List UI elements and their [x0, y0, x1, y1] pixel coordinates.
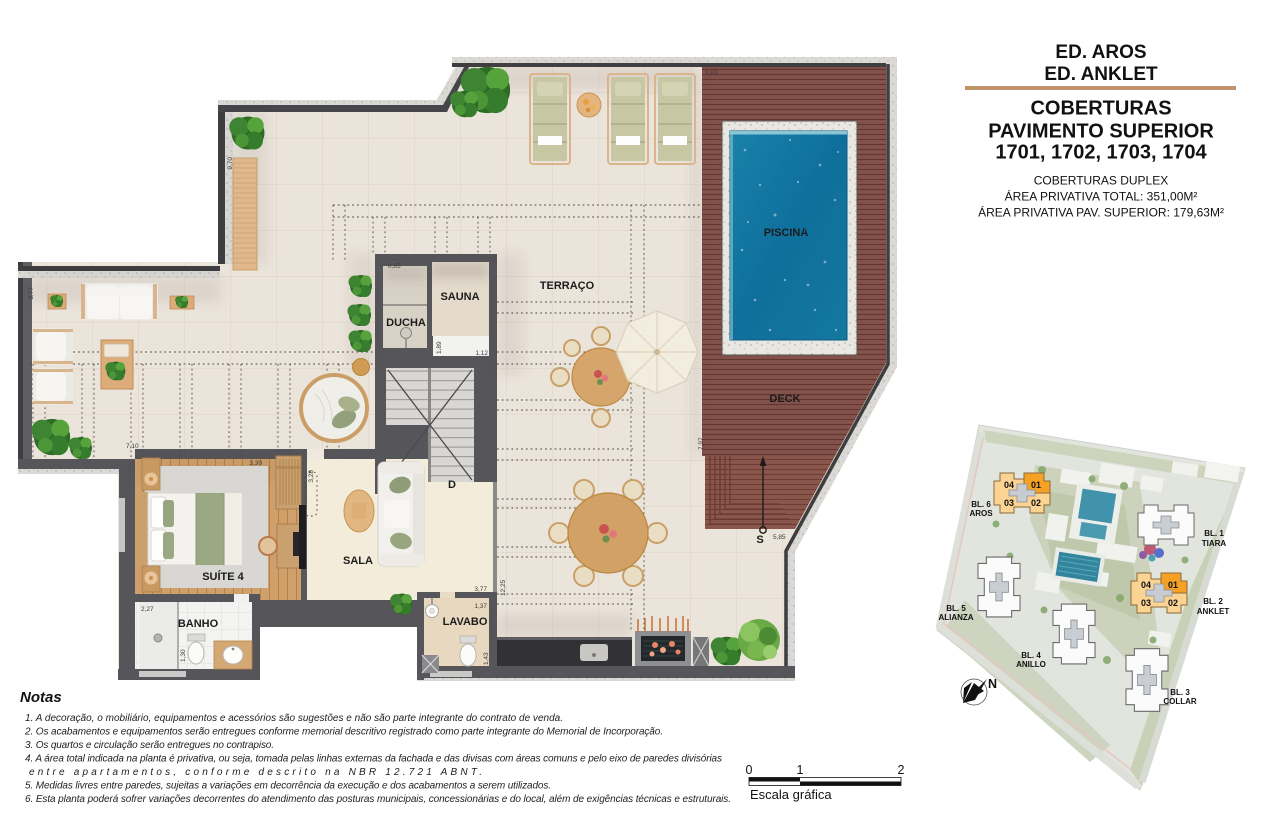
svg-text:TERRAÇO: TERRAÇO	[540, 280, 595, 292]
svg-text:BL. 2: BL. 2	[1203, 597, 1223, 606]
svg-text:3,77: 3,77	[474, 586, 487, 593]
svg-text:ANILLO: ANILLO	[1016, 660, 1046, 669]
svg-text:02: 02	[1168, 598, 1178, 608]
svg-text:BL. 4: BL. 4	[1021, 651, 1041, 660]
svg-text:2: 2	[898, 763, 905, 777]
svg-text:ED. AROS: ED. AROS	[1055, 42, 1146, 63]
svg-text:3,30: 3,30	[249, 460, 262, 467]
svg-text:DECK: DECK	[769, 393, 800, 405]
svg-text:ÁREA PRIVATIVA TOTAL: 351,00M²: ÁREA PRIVATIVA TOTAL: 351,00M²	[1005, 189, 1198, 204]
svg-text:04: 04	[1004, 480, 1014, 490]
svg-text:S: S	[756, 534, 763, 546]
svg-text:COBERTURAS DUPLEX: COBERTURAS DUPLEX	[1034, 174, 1168, 188]
svg-text:1,37: 1,37	[474, 603, 487, 610]
svg-text:1: 1	[797, 763, 804, 777]
svg-text:1,30: 1,30	[180, 649, 187, 662]
svg-text:02: 02	[1031, 498, 1041, 508]
svg-text:Escala gráfica: Escala gráfica	[750, 787, 832, 802]
svg-text:ÁREA PRIVATIVA PAV. SUPERIOR:: ÁREA PRIVATIVA PAV. SUPERIOR: 179,63M²	[978, 205, 1224, 220]
svg-text:3,28: 3,28	[308, 470, 315, 483]
svg-text:3,77: 3,77	[28, 287, 35, 300]
svg-text:7,97: 7,97	[698, 437, 705, 450]
svg-text:03: 03	[1141, 598, 1151, 608]
svg-text:SAUNA: SAUNA	[440, 291, 479, 303]
svg-text:PAVIMENTO SUPERIOR: PAVIMENTO SUPERIOR	[988, 121, 1214, 143]
svg-text:ALIANZA: ALIANZA	[938, 613, 973, 622]
svg-text:6. Esta planta poderá sofrer v: 6. Esta planta poderá sofrer variações d…	[25, 794, 731, 805]
svg-text:BL. 5: BL. 5	[946, 604, 966, 613]
svg-text:12,25: 12,25	[500, 579, 507, 596]
svg-text:N: N	[988, 677, 997, 691]
svg-text:SUÍTE 4: SUÍTE 4	[202, 570, 244, 583]
svg-text:5,85: 5,85	[773, 534, 786, 541]
svg-text:Notas: Notas	[20, 689, 62, 706]
svg-text:BL. 3: BL. 3	[1170, 688, 1190, 697]
svg-text:5. Medidas livres entre parede: 5. Medidas livres entre paredes, sujeita…	[25, 781, 551, 792]
svg-text:0: 0	[746, 763, 753, 777]
svg-text:D: D	[448, 479, 456, 491]
svg-text:COLLAR: COLLAR	[1163, 697, 1197, 706]
svg-text:03: 03	[1004, 498, 1014, 508]
svg-text:AROS: AROS	[969, 509, 993, 518]
svg-text:LAVABO: LAVABO	[443, 616, 488, 628]
svg-text:1. A decoração, o mobiliário,: 1. A decoração, o mobiliário, equipament…	[25, 713, 563, 724]
svg-text:01: 01	[1031, 480, 1041, 490]
svg-text:9,70: 9,70	[227, 157, 234, 170]
svg-text:7,10: 7,10	[126, 443, 139, 450]
svg-text:3,63: 3,63	[705, 70, 718, 77]
svg-text:BANHO: BANHO	[178, 618, 219, 630]
svg-text:0,85: 0,85	[388, 263, 401, 270]
svg-text:1,12: 1,12	[475, 350, 488, 357]
svg-text:BL. 1: BL. 1	[1204, 529, 1224, 538]
svg-text:01: 01	[1168, 580, 1178, 590]
svg-text:DUCHA: DUCHA	[386, 317, 426, 329]
svg-text:TIARA: TIARA	[1202, 539, 1227, 548]
svg-text:ANKLET: ANKLET	[1197, 607, 1230, 616]
svg-text:3. Os quartos e circulação ser: 3. Os quartos e circulação serão entregu…	[25, 740, 274, 751]
svg-text:1,89: 1,89	[436, 341, 443, 354]
svg-text:ED. ANKLET: ED. ANKLET	[1044, 64, 1158, 85]
svg-text:COBERTURAS: COBERTURAS	[1030, 98, 1171, 120]
svg-text:2. Os acabamentos e equipament: 2. Os acabamentos e equipamentos serão e…	[24, 727, 663, 738]
svg-text:BL. 6: BL. 6	[971, 500, 991, 509]
svg-text:1701, 1702, 1703, 1704: 1701, 1702, 1703, 1704	[995, 142, 1207, 164]
svg-text:SALA: SALA	[343, 555, 373, 567]
svg-text:1,43: 1,43	[483, 652, 490, 665]
svg-text:PISCINA: PISCINA	[764, 227, 809, 239]
svg-text:2,27: 2,27	[141, 606, 154, 613]
svg-text:4. A área total indicada na pl: 4. A área total indicada na planta é pri…	[25, 754, 722, 765]
svg-text:04: 04	[1141, 580, 1151, 590]
